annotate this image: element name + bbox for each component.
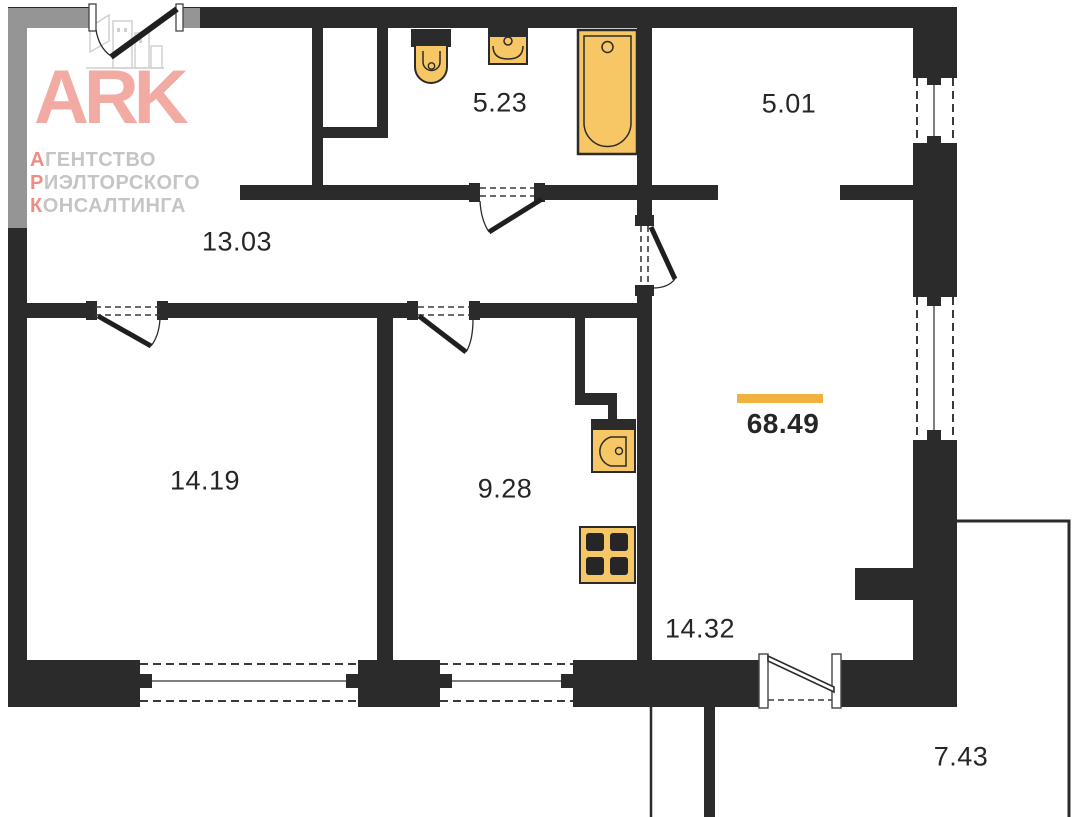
window-living-room bbox=[917, 296, 953, 440]
bedroom-door bbox=[95, 307, 160, 346]
room-label-balcony: 7.43 bbox=[934, 742, 989, 773]
wall bbox=[8, 660, 140, 707]
room-label-bedroom: 14.19 bbox=[170, 466, 240, 497]
room-label-living-room: 14.32 bbox=[665, 614, 735, 645]
living-room-door bbox=[641, 226, 675, 288]
shaft-wall bbox=[312, 28, 323, 200]
window-wardrobe bbox=[917, 75, 953, 146]
bathroom-door bbox=[480, 188, 542, 232]
kitchen-sink-icon bbox=[592, 420, 635, 472]
wall bbox=[837, 660, 957, 707]
duct-wall bbox=[575, 318, 585, 405]
room-label-hallway: 13.03 bbox=[202, 227, 272, 258]
wall bbox=[913, 143, 957, 297]
window-kitchen bbox=[440, 664, 573, 701]
room-label-kitchen: 9.28 bbox=[478, 474, 533, 505]
wall bbox=[377, 318, 393, 660]
wall bbox=[27, 303, 95, 318]
wall bbox=[840, 185, 913, 200]
wall bbox=[358, 660, 440, 707]
wall bbox=[180, 7, 957, 28]
wall bbox=[472, 303, 652, 318]
logo-watermark-background bbox=[8, 8, 200, 228]
room-label-bathroom: 5.23 bbox=[473, 88, 528, 119]
kitchen-door bbox=[418, 307, 473, 352]
balcony-door bbox=[759, 654, 841, 708]
total-area-label: 68.49 bbox=[747, 408, 820, 440]
wall bbox=[637, 288, 652, 660]
window-bedroom bbox=[140, 664, 358, 701]
sink-icon bbox=[489, 28, 527, 64]
wall bbox=[913, 7, 957, 78]
floor-plan-drawing bbox=[0, 0, 1080, 817]
floor-plan: ARK АГЕНТСТВО РИЭЛТОРСКОГО КОНСАЛТИНГА 5… bbox=[0, 0, 1080, 817]
toilet-icon bbox=[411, 29, 451, 83]
wall bbox=[160, 303, 418, 318]
shaft-wall bbox=[323, 127, 377, 138]
shaft-wall bbox=[377, 28, 388, 138]
stove-icon bbox=[580, 527, 635, 583]
bathtub-icon bbox=[578, 30, 637, 154]
wall bbox=[855, 568, 913, 600]
duct-wall bbox=[575, 393, 617, 405]
wall bbox=[573, 660, 763, 707]
room-label-wardrobe: 5.01 bbox=[762, 89, 817, 120]
wall bbox=[240, 185, 470, 200]
wall bbox=[545, 185, 718, 200]
wall bbox=[637, 28, 652, 222]
total-area-highlight-bar bbox=[737, 394, 823, 403]
